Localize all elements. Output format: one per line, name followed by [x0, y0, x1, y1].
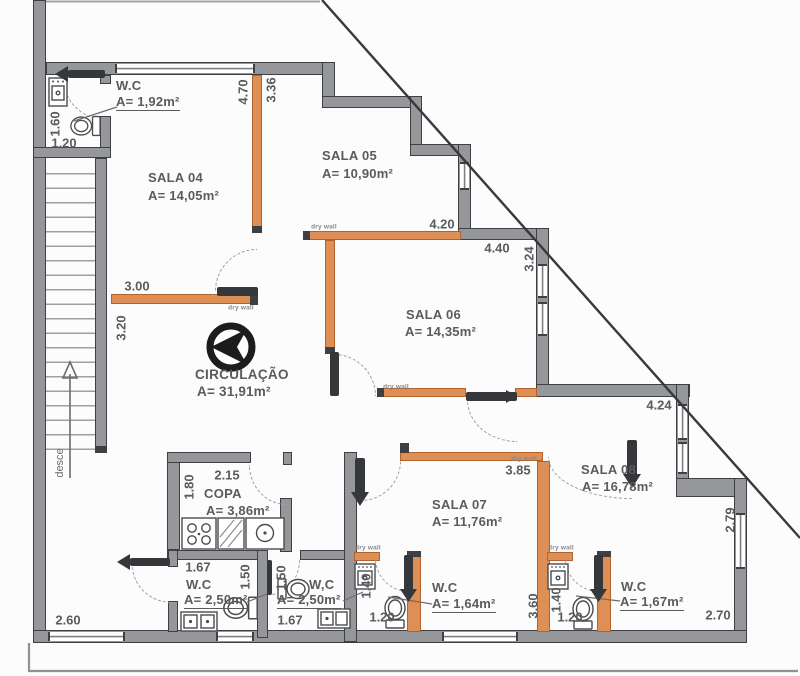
window	[48, 632, 125, 641]
wall-cap	[400, 443, 409, 453]
dimension-label: 4.40	[484, 241, 509, 256]
wall-copa-bottom	[167, 550, 260, 560]
dimension-label: 4.70	[236, 79, 251, 104]
room-label-sala08: SALA 08	[581, 462, 636, 477]
dimension-label: 1.67	[277, 613, 302, 628]
room-label-sala06: SALA 06	[406, 307, 461, 322]
drywall-note: dry wall	[548, 545, 574, 552]
stairs-direction-label: desce	[54, 448, 66, 477]
room-label-wc-sala07: W.C	[432, 580, 457, 595]
room-area-wc-sala07: A= 1,64m²	[432, 596, 496, 613]
door-leaf	[68, 70, 105, 78]
drywall-sala06-south	[515, 388, 537, 397]
wall-post	[283, 452, 292, 465]
door-leaf	[330, 352, 339, 396]
dimension-label: 1.40	[359, 573, 374, 598]
window	[115, 64, 255, 73]
door-leaf	[404, 555, 413, 593]
wall-copa-top	[167, 452, 251, 463]
door-leaf	[594, 555, 603, 593]
window	[216, 632, 254, 641]
sink-icon	[180, 611, 218, 632]
floor-plan: W.C A= 1,92m² SALA 04 A= 14,05m² SALA 05…	[0, 0, 800, 676]
dimension-label: 3.20	[114, 315, 129, 340]
door-swing-arc	[132, 565, 172, 603]
room-area-sala08: A= 16,78m²	[582, 479, 653, 494]
wall-step	[458, 144, 471, 240]
window	[678, 404, 687, 440]
room-label-wc-left: W.C	[186, 577, 211, 592]
drywall-sala06-west	[325, 240, 335, 354]
wall-step	[458, 228, 548, 240]
room-area-wc-left: A= 2,50m²	[184, 592, 248, 609]
window	[460, 162, 469, 190]
room-label-wc-top: W.C	[116, 78, 141, 93]
counter-icon	[217, 517, 245, 550]
room-area-copa: A= 3,86m²	[206, 503, 270, 518]
north-arrow-icon	[204, 320, 258, 374]
window	[538, 264, 547, 298]
door-leaf	[217, 287, 258, 296]
dimension-label: 1.80	[182, 474, 197, 499]
door-leaf	[355, 458, 365, 496]
room-label-wc-mid: W,C	[309, 577, 334, 592]
drywall-note: dry wall	[311, 224, 337, 231]
room-label-sala07: SALA 07	[432, 497, 487, 512]
drywall-sala04-05	[252, 75, 262, 233]
door-swing-arc	[249, 465, 287, 505]
dimension-label: 3.60	[526, 593, 541, 618]
kitchen-sink-icon	[245, 517, 285, 550]
wall-cap	[95, 446, 107, 453]
room-area-wc-mid: A= 2,50m²	[277, 592, 341, 609]
sink-icon	[547, 563, 569, 590]
dimension-label: 2.15	[214, 468, 239, 483]
door-swing-arc	[467, 400, 517, 442]
wall-step	[322, 96, 422, 108]
door-swing-arc	[215, 249, 257, 291]
door-leaf	[267, 560, 272, 595]
door-swing-arc	[334, 354, 376, 396]
wall-wc1-left	[168, 601, 178, 632]
dimension-label: 1.50	[238, 564, 253, 589]
wall-copa-left	[167, 452, 180, 550]
dimension-label: 1.20	[369, 610, 394, 625]
room-label-wc-sala08: W.C	[621, 579, 646, 594]
dimension-label: 1.20	[557, 610, 582, 625]
staircase	[46, 160, 95, 450]
sink-icon	[48, 77, 68, 107]
room-label-sala05: SALA 05	[322, 148, 377, 163]
dimension-label: 1.67	[185, 560, 210, 575]
room-label-sala04: SALA 04	[148, 170, 203, 185]
dimension-label: 4.20	[429, 217, 454, 232]
sink-icon	[317, 608, 351, 629]
room-area-wc-sala08: A= 1,67m²	[620, 594, 684, 611]
dimension-label: 2.79	[723, 507, 738, 532]
dimension-label: 2.60	[55, 613, 80, 628]
door-leaf	[130, 558, 170, 566]
wall-outer-bottom	[33, 630, 747, 643]
room-area-sala06: A= 14,35m²	[405, 324, 476, 339]
wall-cap	[252, 226, 262, 233]
drywall-note: dry wall	[355, 545, 381, 552]
room-area-wc-top: A= 1,92m²	[116, 94, 180, 111]
dimension-label: 1.20	[51, 136, 76, 151]
stove-icon	[181, 517, 217, 550]
room-area-sala05: A= 10,90m²	[322, 166, 393, 181]
wall-wc-top-right	[100, 116, 111, 148]
window	[678, 442, 687, 474]
window	[538, 302, 547, 336]
window	[442, 632, 518, 641]
room-area-circulacao: A= 31,91m²	[197, 384, 271, 399]
door-swing-arc	[361, 461, 401, 501]
dimension-label: 3.85	[505, 463, 530, 478]
wall-step	[536, 384, 690, 397]
wall-cap	[303, 231, 310, 240]
wall-stairs	[95, 158, 107, 452]
wall-outer-left	[33, 0, 46, 632]
room-label-circulacao: CIRCULAÇÃO	[195, 367, 289, 382]
drywall-note: dry wall	[383, 384, 409, 391]
dimension-label: 3.24	[522, 246, 537, 271]
dimension-label: 3.36	[264, 77, 279, 102]
drywall-note: dry wall	[511, 456, 537, 463]
door-leaf	[466, 392, 517, 401]
dimension-label: 2.70	[705, 608, 730, 623]
dimension-label: 3.00	[124, 279, 149, 294]
dimension-label: 1.50	[274, 565, 289, 590]
room-area-sala04: A= 14,05m²	[148, 188, 219, 203]
drywall-note: dry wall	[228, 305, 254, 312]
dimension-label: 1.60	[48, 111, 63, 136]
room-label-copa: COPA	[204, 486, 242, 501]
room-area-sala07: A= 11,76m²	[432, 514, 502, 529]
drywall-sala05-06	[303, 231, 461, 240]
dimension-label: 4.24	[646, 398, 671, 413]
